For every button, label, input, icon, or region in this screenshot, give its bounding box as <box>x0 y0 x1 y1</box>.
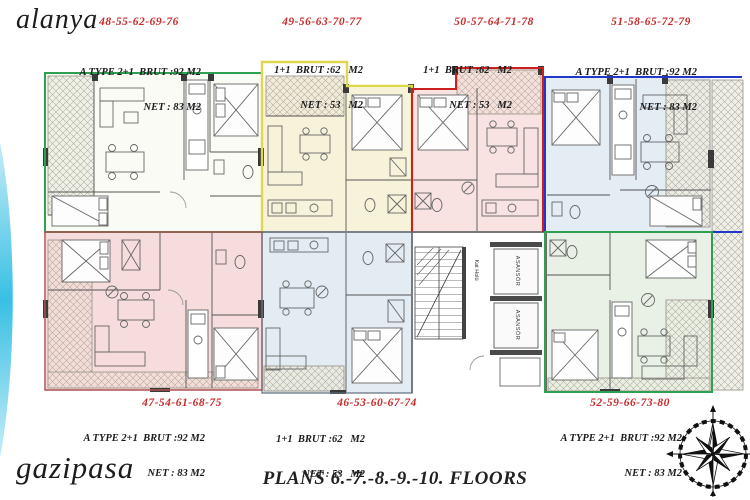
unit-type-line1: A TYPE 2+1 BRUT :92 M2 <box>537 433 682 445</box>
unit-type-line1: 1+1 BRUT :62 M2 <box>367 65 512 77</box>
unit-type-line2: NET : 53 M2 <box>218 100 363 112</box>
unit-code-top-2: 49-56-63-70-77 <box>242 16 402 28</box>
unit-type-line2: NET : 83 M2 <box>56 102 201 114</box>
unit-type-top-2: 1+1 BRUT :62 M2 NET : 53 M2 <box>218 42 363 123</box>
unit-code-bottom-1: 47-54-61-68-75 <box>102 397 262 409</box>
unit-type-line1: A TYPE 2+1 BRUT :92 M2 <box>60 433 205 445</box>
unit-type-line2: NET : 53 M2 <box>367 100 512 112</box>
unit-type-bottom-1: A TYPE 2+1 BRUT :92 M2 NET : 83 M2 <box>60 410 205 491</box>
unit-code-bottom-2: 46-53-60-67-74 <box>297 397 457 409</box>
unit-type-line2: NET : 83 M2 <box>537 468 682 480</box>
unit-type-line1: A TYPE 2+1 BRUT :92 M2 <box>552 67 697 79</box>
unit-type-line1: 1+1 BRUT :62 M2 <box>220 434 365 446</box>
left-swoosh-graphic <box>0 142 13 458</box>
stair-hall-label: Kat Holü <box>473 259 479 280</box>
unit-type-line1: 1+1 BRUT :62 M2 <box>218 65 363 77</box>
unit-type-line1: A TYPE 2+1 BRUT :92 M2 <box>56 67 201 79</box>
unit-code-top-4: 51-58-65-72-79 <box>571 16 731 28</box>
plans-floors-title: PLANS 6.-7.-8.-9.-10. FLOORS <box>260 468 530 490</box>
unit-code-top-1: 48-55-62-69-76 <box>59 16 219 28</box>
unit-type-line2: NET : 83 M2 <box>60 468 205 480</box>
unit-type-bottom-3: A TYPE 2+1 BRUT :92 M2 NET : 83 M2 <box>537 410 682 491</box>
unit-type-top-1: A TYPE 2+1 BRUT :92 M2 NET : 83 M2 <box>56 44 201 125</box>
unit-type-line2: NET : 83 M2 <box>552 102 697 114</box>
unit-type-top-4: A TYPE 2+1 BRUT :92 M2 NET : 83 M2 <box>552 44 697 125</box>
elevator-2-label: ASANSÖR <box>514 310 521 340</box>
unit-type-top-3: 1+1 BRUT :62 M2 NET : 53 M2 <box>367 42 512 123</box>
elevator-1-label: ASANSÖR <box>514 256 521 286</box>
unit-code-bottom-3: 52-59-66-73-80 <box>550 397 710 409</box>
unit-code-top-3: 50-57-64-71-78 <box>414 16 574 28</box>
